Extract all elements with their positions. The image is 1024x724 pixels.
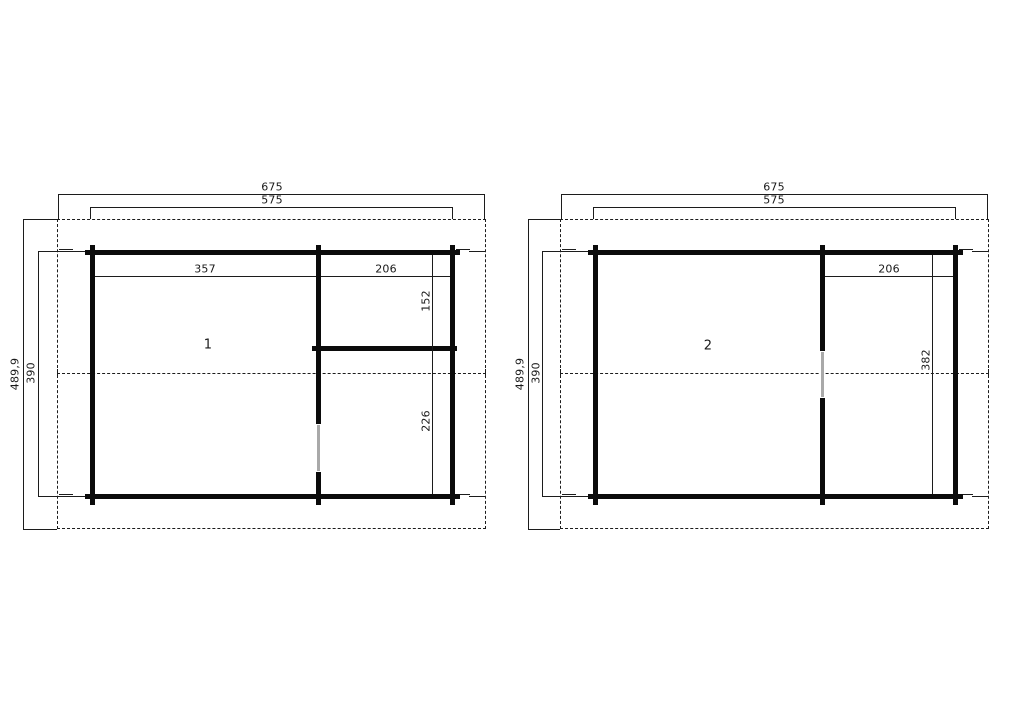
plan2-centerline-tick-right (988, 369, 989, 378)
plan2-building-width-dimline (593, 207, 956, 208)
plan2-wall-left (593, 245, 598, 505)
plan2-corner-mark-br-b (972, 496, 988, 497)
plan2-right-room-depth-label: 382 (921, 349, 932, 371)
plan2-right-room-width-dimline (825, 276, 953, 277)
plan2-door-leaf (821, 352, 824, 397)
floor-plan-canvas: 675 575 489,9 390 (0, 0, 1024, 724)
plan2-room-label: 2 (704, 340, 712, 353)
plan2-wall-top (588, 250, 963, 255)
plan2-overall-depth-extension-top (528, 219, 560, 220)
plan2-right-room-depth-dimline (932, 255, 933, 494)
plan2-center-dashline (560, 373, 989, 374)
plan2-building-width-label: 575 (763, 195, 785, 206)
plan2-centerline-tick-left (560, 369, 561, 378)
plan2-corner-mark-tl-a (562, 249, 576, 250)
plan2-right-room-width-label: 206 (878, 264, 900, 275)
plan2-overall-depth-label: 489,9 (515, 358, 526, 391)
plan2-building-depth-label: 390 (531, 362, 542, 384)
plan2-roof-outline (560, 219, 989, 529)
plan2-overall-width-extension-right (987, 194, 988, 219)
plan2-corner-mark-bl-a (562, 494, 576, 495)
plan2-overall-width-extension-left (561, 194, 562, 219)
plan2-building-width-extension-left (593, 207, 594, 219)
plan-2: 675 575 489,9 390 (0, 0, 1024, 724)
plan2-overall-depth-extension-bottom (528, 529, 560, 530)
plan2-corner-mark-tr-b (972, 251, 988, 252)
plan2-wall-right (953, 245, 958, 505)
plan2-overall-width-label: 675 (763, 182, 785, 193)
plan2-wall-bottom (588, 494, 963, 499)
plan2-building-width-extension-right (955, 207, 956, 219)
